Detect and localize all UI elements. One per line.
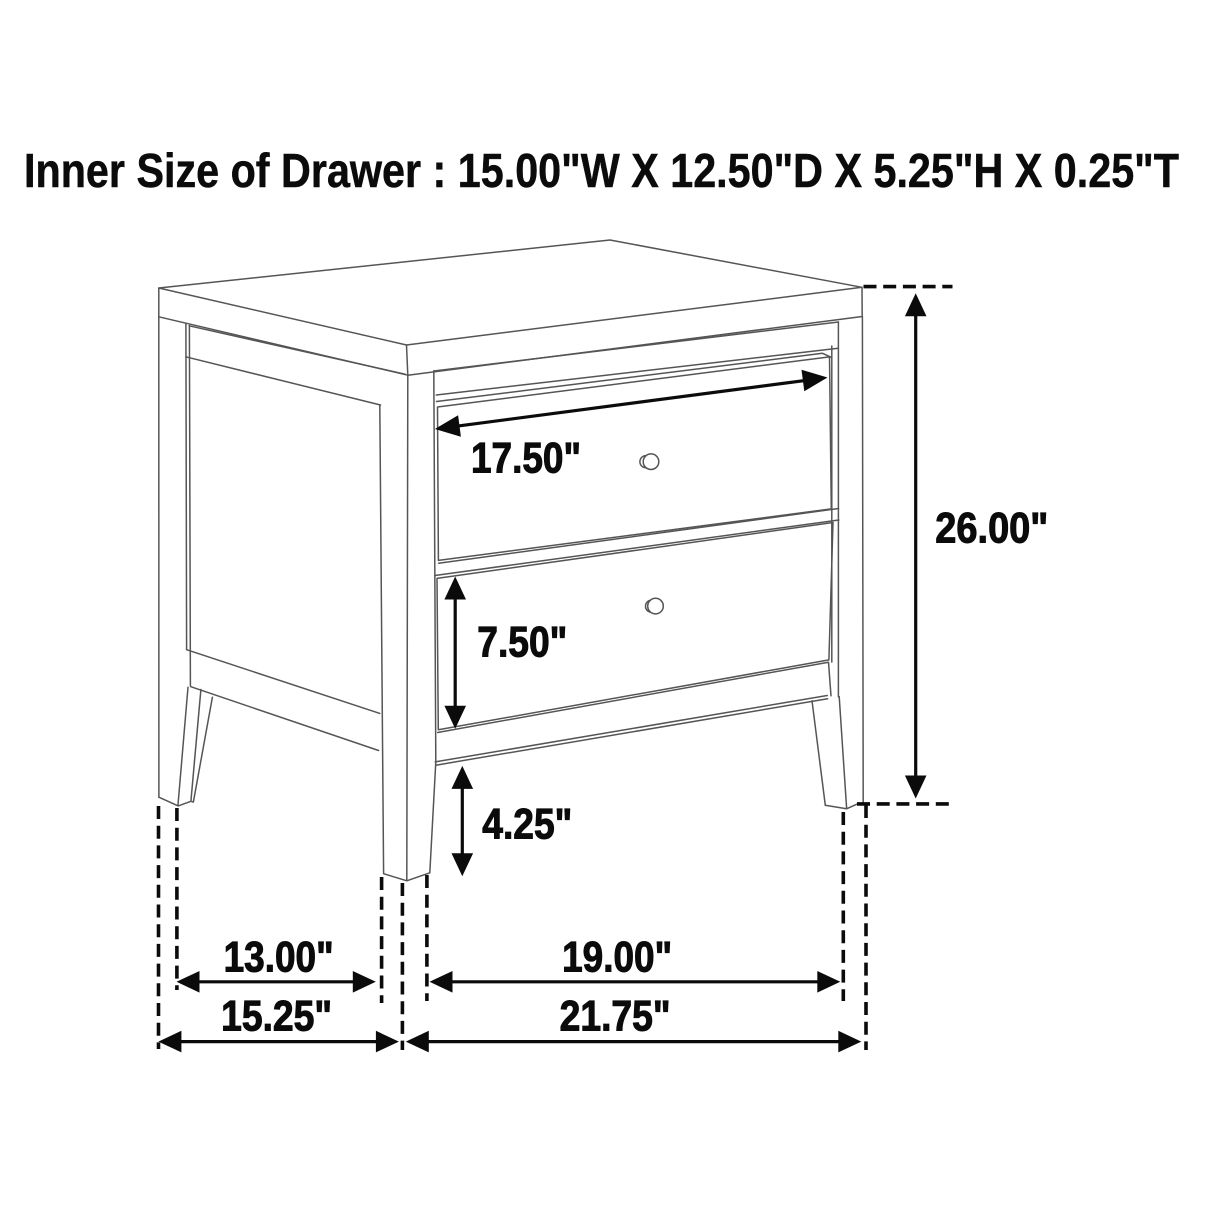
svg-text:19.00": 19.00" [562, 933, 672, 981]
svg-text:13.00": 13.00" [224, 933, 334, 981]
svg-text:21.75": 21.75" [560, 993, 671, 1041]
svg-text:4.25": 4.25" [482, 801, 572, 849]
svg-text:Inner Size of Drawer : 15.00"W: Inner Size of Drawer : 15.00"W X 12.50"D… [24, 145, 1179, 198]
svg-text:15.25": 15.25" [221, 993, 332, 1041]
svg-text:7.50": 7.50" [477, 618, 567, 666]
svg-text:17.50": 17.50" [471, 435, 581, 483]
svg-text:26.00": 26.00" [935, 505, 1048, 553]
